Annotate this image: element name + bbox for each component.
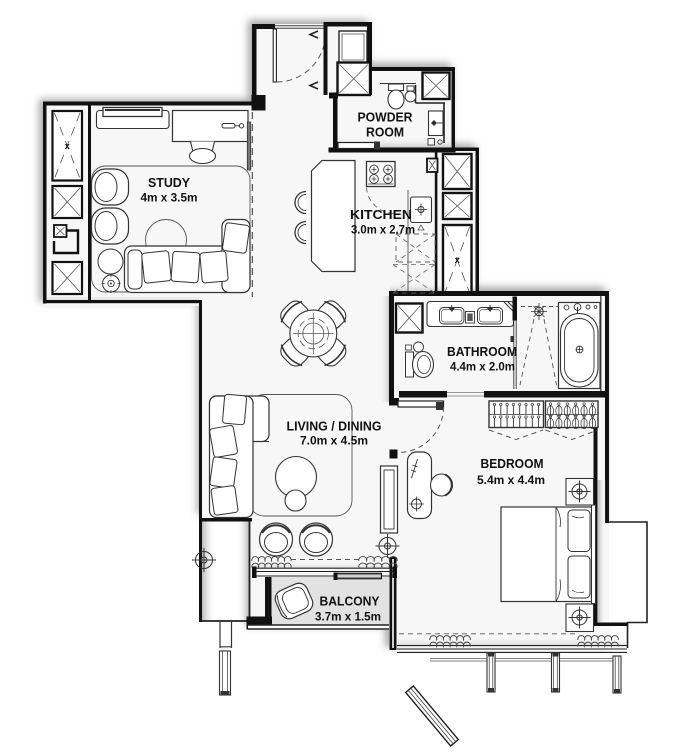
svg-text:x: x xyxy=(455,255,460,265)
svg-text:LIVING / DINING: LIVING / DINING xyxy=(287,419,382,434)
svg-text:ROOM: ROOM xyxy=(366,125,404,140)
svg-text:3.7m x 1.5m: 3.7m x 1.5m xyxy=(315,610,381,624)
svg-text:BEDROOM: BEDROOM xyxy=(481,456,544,471)
svg-text:4.4m x 2.0m: 4.4m x 2.0m xyxy=(450,360,515,374)
svg-text:STUDY: STUDY xyxy=(148,175,190,190)
svg-text:x: x xyxy=(65,141,70,151)
svg-text:3.0m x 2.7m: 3.0m x 2.7m xyxy=(351,223,415,237)
svg-text:7.0m x 4.5m: 7.0m x 4.5m xyxy=(300,434,368,448)
svg-text:BALCONY: BALCONY xyxy=(320,594,380,609)
svg-text:BATHROOM: BATHROOM xyxy=(447,344,517,359)
svg-text:KITCHEN: KITCHEN xyxy=(350,207,412,222)
svg-text:POWDER: POWDER xyxy=(358,110,414,125)
svg-text:4m x 3.5m: 4m x 3.5m xyxy=(141,191,198,205)
svg-text:5.4m x 4.4m: 5.4m x 4.4m xyxy=(477,473,545,487)
